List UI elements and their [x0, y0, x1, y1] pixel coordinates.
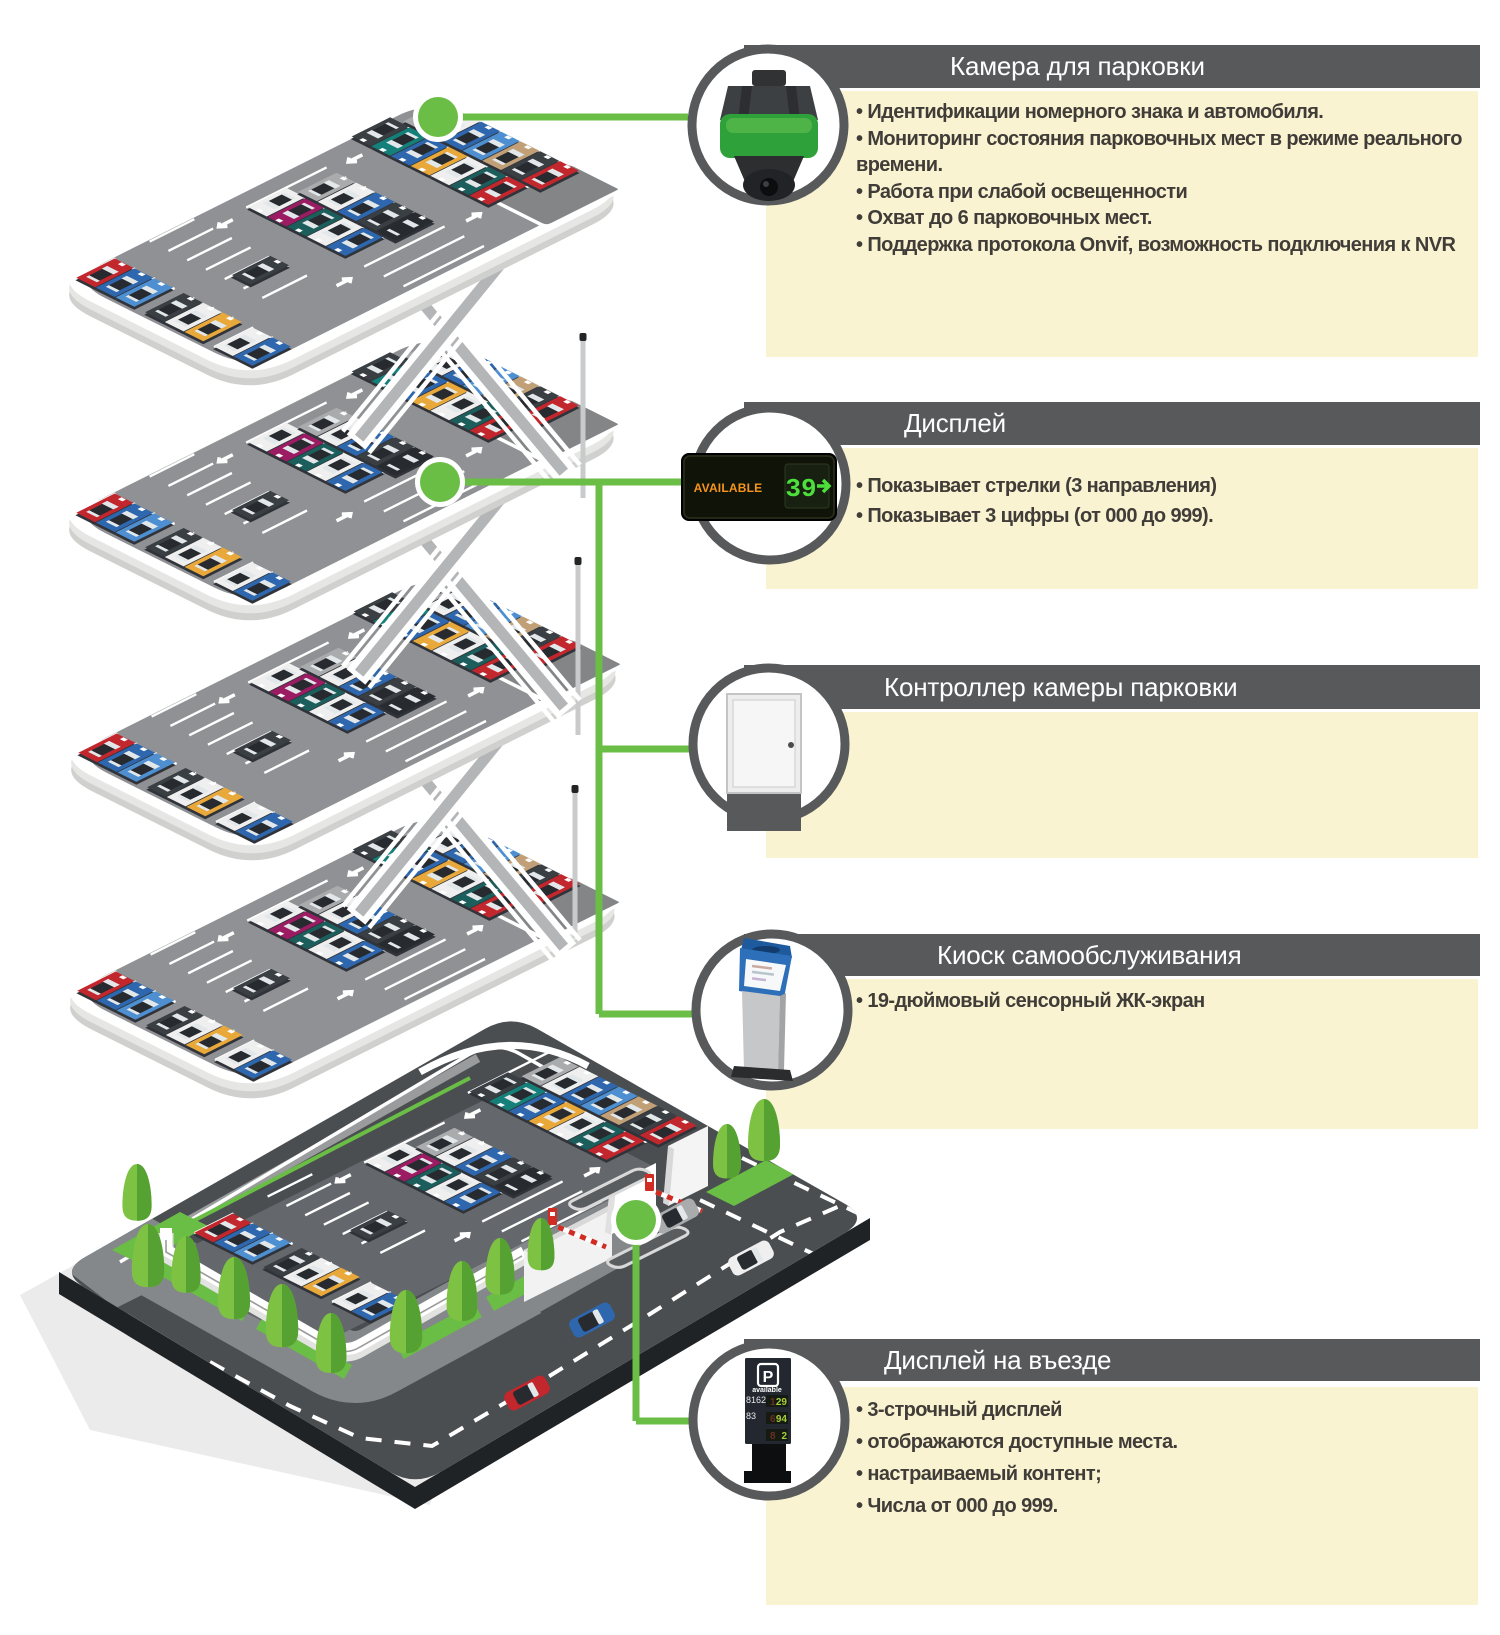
- svg-text:29: 29: [776, 1397, 788, 1408]
- svg-text:P: P: [763, 1369, 774, 1386]
- svg-text:available: available: [752, 1387, 782, 1394]
- svg-text:8: 8: [770, 1431, 776, 1442]
- svg-text:8162: 8162: [746, 1395, 766, 1405]
- svg-text:94: 94: [776, 1414, 788, 1425]
- svg-text:AVAILABLE: AVAILABLE: [694, 481, 763, 495]
- svg-text:2: 2: [781, 1431, 787, 1442]
- svg-text:39: 39: [785, 474, 816, 504]
- svg-text:83: 83: [746, 1411, 756, 1421]
